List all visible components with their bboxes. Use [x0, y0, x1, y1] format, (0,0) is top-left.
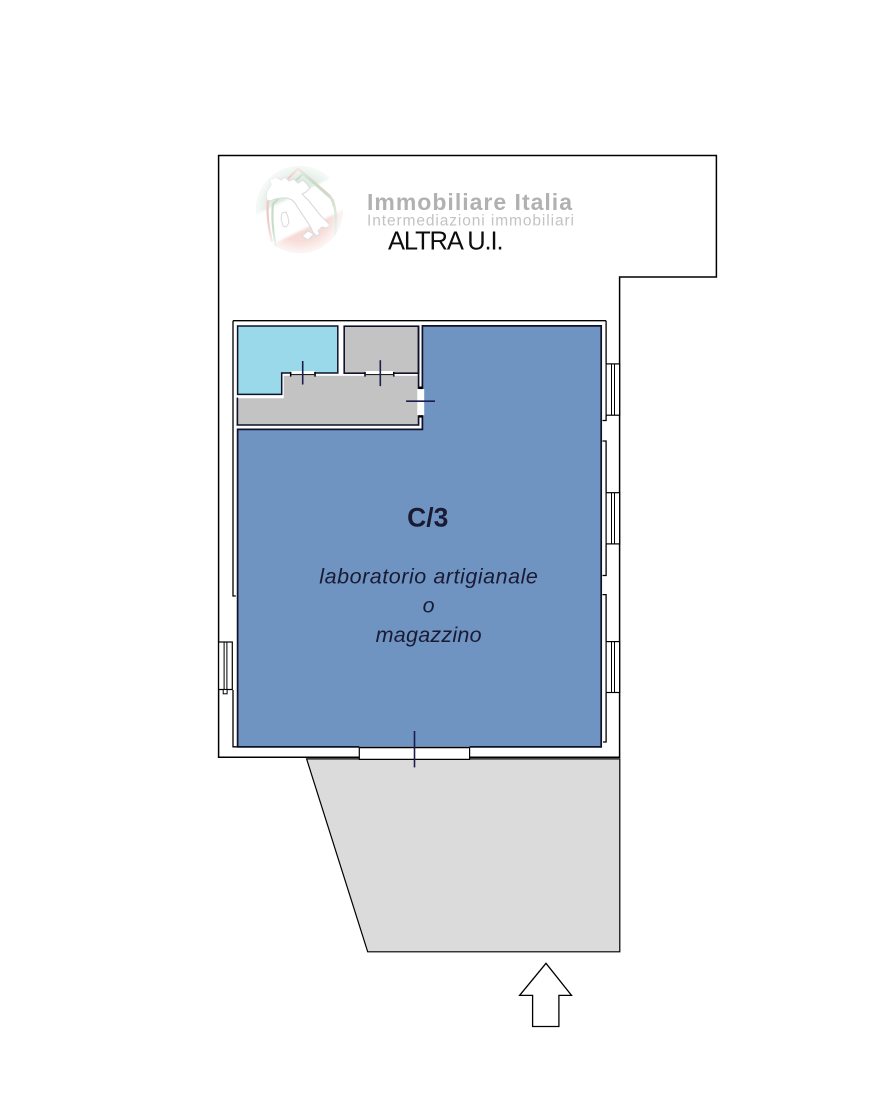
svg-text:C/3: C/3 — [407, 503, 448, 533]
svg-text:o: o — [423, 594, 435, 618]
svg-text:magazzino: magazzino — [376, 623, 482, 647]
svg-text:laboratorio artigianale: laboratorio artigianale — [319, 564, 538, 588]
svg-text:Immobiliare Italia: Immobiliare Italia — [367, 189, 572, 215]
svg-text:ALTRA U.I.: ALTRA U.I. — [388, 227, 504, 255]
